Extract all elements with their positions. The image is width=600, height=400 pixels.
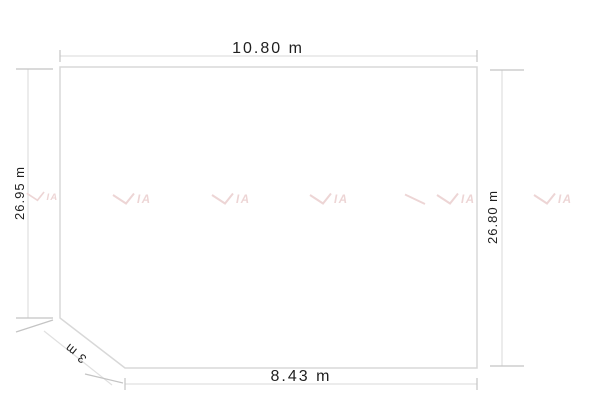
via-watermark-icon: IA: [212, 194, 251, 207]
dimension-labels: 10.80 m 26.95 m 26.80 m 8.43 m 3 m: [12, 40, 500, 385]
dimension-label-top: 10.80 m: [232, 40, 304, 57]
lot-outline-group: [60, 67, 477, 368]
via-watermark-icon: IA: [437, 194, 476, 207]
via-watermark-letters: IA: [461, 194, 476, 206]
dimension-label-left: 26.95 m: [12, 166, 27, 220]
dimension-label-right: 26.80 m: [485, 190, 500, 244]
dimension-lines: [28, 56, 502, 385]
via-watermark-icon: IA: [534, 194, 573, 207]
via-watermark-letters: IA: [137, 194, 152, 206]
via-watermark-letters: IA: [47, 191, 59, 202]
via-check-icon: [437, 194, 458, 204]
tick-chamfer-start: [16, 320, 53, 332]
via-check-icon: [212, 194, 233, 204]
dimension-label-chamfer: 3 m: [62, 340, 89, 366]
tick-marks: [16, 50, 524, 390]
tick-chamfer-end: [85, 374, 123, 383]
dimension-label-bottom: 8.43 m: [271, 368, 332, 385]
via-watermark-partial-stroke: [405, 195, 425, 205]
via-check-icon: [27, 192, 44, 200]
via-check-icon: [113, 194, 134, 204]
via-watermark-icon: IA: [27, 191, 59, 202]
via-watermark-letters: IA: [236, 194, 251, 206]
via-watermark-icon: IA: [113, 194, 152, 207]
via-watermark-letters: IA: [558, 194, 573, 206]
via-watermark-letters: IA: [334, 194, 349, 206]
lot-diagram: 10.80 m 26.95 m 26.80 m 8.43 m 3 m IA IA…: [0, 0, 600, 400]
via-watermark-icon: IA: [310, 194, 349, 207]
lot-outline: [60, 67, 477, 368]
via-check-icon: [310, 194, 331, 204]
via-check-icon: [534, 194, 555, 204]
diagram-svg: 10.80 m 26.95 m 26.80 m 8.43 m 3 m IA IA…: [0, 0, 600, 400]
